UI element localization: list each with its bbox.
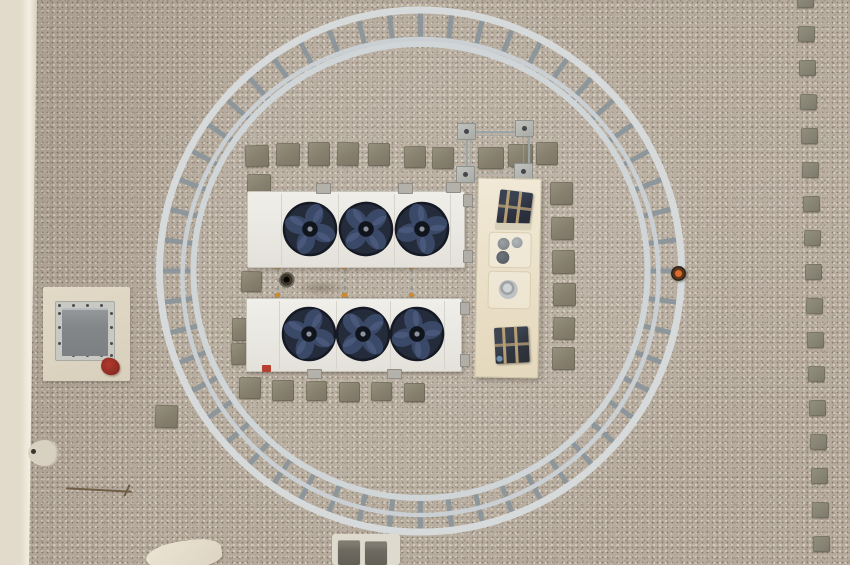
knob-panel (488, 232, 532, 269)
hatch-bolts (58, 304, 61, 307)
paver-walkway-dot (801, 128, 818, 144)
red-clamp (262, 365, 271, 372)
roof-hatch (55, 301, 115, 361)
caged-device-bottom (494, 326, 530, 364)
unit-bracket (463, 194, 473, 207)
paver-walkway-dot (812, 502, 830, 519)
device-base-plate (495, 223, 531, 231)
condenser-unit-upper (247, 191, 465, 268)
paver-walkway-dot (802, 162, 820, 179)
ball-marker (671, 266, 686, 281)
paver-walkway-dot (800, 94, 818, 111)
gravel-dark-dot (31, 449, 36, 454)
unit-foot (387, 369, 402, 379)
blue-fleck (496, 356, 502, 362)
paver-walkway-dot (811, 468, 828, 484)
paver-walkway-dot (808, 366, 826, 383)
paver-walkway-dot (807, 332, 824, 348)
knob (512, 237, 523, 248)
unit-foot (446, 182, 461, 193)
paver-walkway-dot (806, 298, 824, 315)
unit-foot (307, 369, 322, 379)
caged-device-top (496, 189, 533, 227)
fan-hub-center (307, 226, 312, 231)
axial-fan (280, 305, 338, 363)
guardrail-outer-rail (160, 10, 682, 532)
unit-bracket (463, 250, 473, 263)
axial-fan (281, 200, 339, 258)
paver-walkway-dot (810, 434, 828, 451)
dark-paver (338, 540, 360, 565)
paver-walkway-dot (804, 230, 822, 247)
circular-guardrail (150, 1, 692, 541)
guardrail-inner-rail (194, 44, 648, 498)
axial-fan (334, 305, 392, 363)
guardrail-handrail (183, 39, 659, 515)
paver-walkway-dot (809, 400, 826, 416)
paver-walkway-dot (798, 26, 816, 43)
fan-hub-center (306, 331, 311, 336)
dark-paver (365, 541, 387, 565)
axial-fan (388, 305, 446, 363)
control-cabinet (474, 177, 541, 378)
unit-foot (316, 183, 331, 194)
stick-tool (66, 487, 132, 492)
unit-bracket (460, 302, 470, 315)
cage-strap (498, 204, 531, 211)
paver-walkway-dot (797, 0, 814, 8)
paver-walkway-dot (805, 264, 822, 280)
gauge-panel (487, 271, 531, 310)
paver-walkway-dot (813, 536, 830, 552)
knob (496, 251, 509, 264)
condenser-unit-lower (246, 298, 462, 372)
paver-walkway-dot (799, 60, 816, 76)
paver-walkway-dot (803, 196, 820, 212)
unit-foot (398, 183, 413, 194)
axial-fan (337, 200, 395, 258)
hatch-glass-panel (62, 308, 108, 356)
roof-edge-strip (0, 0, 37, 565)
gauge-cylinder (499, 280, 518, 299)
unit-bracket (460, 354, 470, 367)
cage-strap (495, 342, 529, 347)
knob (497, 238, 509, 250)
axial-fan (393, 200, 451, 258)
rooftop-aerial-photo (0, 0, 850, 565)
